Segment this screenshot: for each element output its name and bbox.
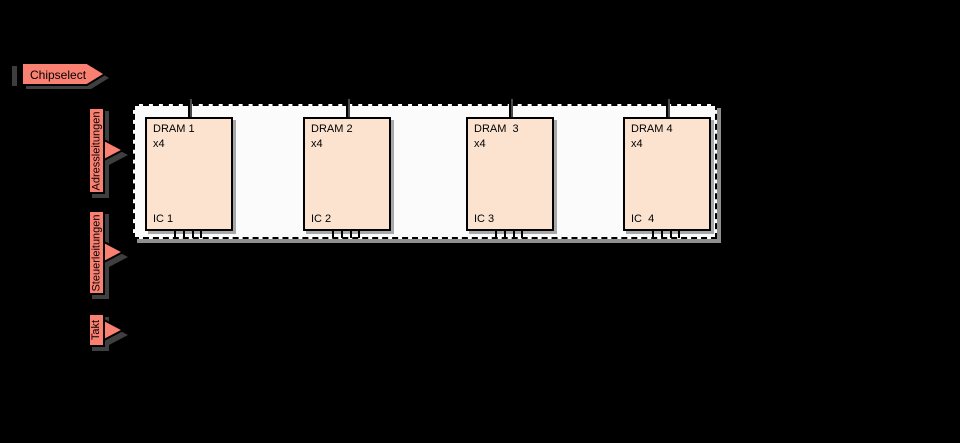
chip-title: DRAM 3	[474, 123, 519, 135]
chip-ic-label: IC 4	[631, 213, 654, 225]
chip-width-label: x4	[474, 138, 486, 150]
dram-chip-4: DRAM 4 x4 IC 4	[623, 117, 711, 231]
chip-pin	[521, 229, 523, 238]
address-lines-text: Adressleitungen	[91, 111, 103, 190]
chip-pin	[183, 229, 185, 238]
chip-pin	[495, 229, 497, 238]
chip-pin	[200, 229, 202, 238]
chip-top-wire	[509, 97, 511, 119]
control-lines-text: Steuerleitungen	[91, 214, 103, 291]
chipselect-label: Chipselect	[20, 61, 114, 91]
control-arrow-right-icon	[103, 240, 133, 271]
chipselect-text: Chipselect	[30, 63, 92, 87]
chip-ic-label: IC 3	[474, 213, 494, 225]
chip-pin	[670, 229, 672, 238]
chip-width-label: x4	[631, 138, 643, 150]
clock-text: Takt	[91, 320, 103, 340]
chip-top-wire	[666, 97, 668, 119]
clock-arrow-right-icon	[103, 318, 133, 349]
chip-top-wire	[346, 97, 348, 119]
chip-pin	[661, 229, 663, 238]
chip-pin	[652, 229, 654, 238]
dram-module-diagram: Chipselect Adressleitungen Steuerleitung…	[0, 0, 960, 443]
chip-pin	[504, 229, 506, 238]
chip-ic-label: IC 2	[311, 213, 331, 225]
chip-pin	[332, 229, 334, 238]
dram-chip-3: DRAM 3 x4 IC 3	[466, 117, 554, 231]
chip-pin	[341, 229, 343, 238]
chip-pin	[192, 229, 194, 238]
chip-top-wire	[188, 97, 190, 119]
left-edge-stub	[12, 66, 17, 86]
chip-title: DRAM 2	[311, 123, 353, 135]
chip-pin	[678, 229, 680, 238]
chip-ic-label: IC 1	[153, 213, 173, 225]
dram-chip-2: DRAM 2 x4 IC 2	[303, 117, 391, 231]
dram-chip-1: DRAM 1 x4 IC 1	[145, 117, 233, 231]
chip-pin	[513, 229, 515, 238]
chip-pin	[350, 229, 352, 238]
chip-pin	[174, 229, 176, 238]
chip-title: DRAM 4	[631, 123, 673, 135]
chip-pin	[358, 229, 360, 238]
chip-title: DRAM 1	[153, 123, 195, 135]
address-arrow-right-icon	[103, 138, 133, 169]
chip-width-label: x4	[153, 138, 165, 150]
chip-width-label: x4	[311, 138, 323, 150]
